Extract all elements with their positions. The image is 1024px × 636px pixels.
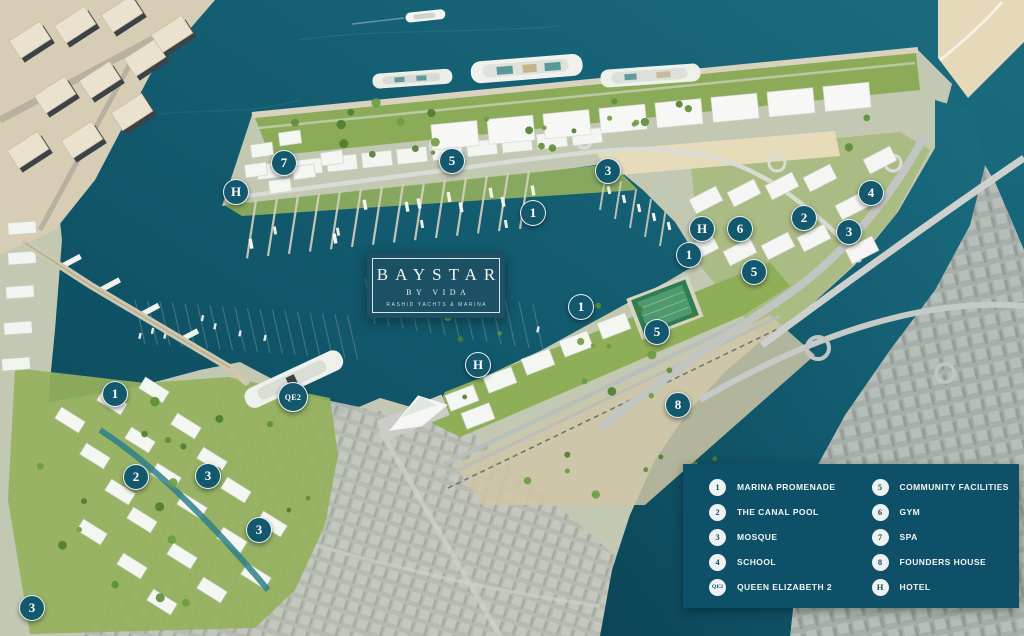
map-marker-8: 8 [665, 392, 691, 418]
map-marker-h: H [689, 216, 715, 242]
brand-title: BAYSTAR [370, 266, 502, 283]
legend-item-community-facilities: 5COMMUNITY FACILITIES [872, 477, 1009, 497]
map-marker-3: 3 [595, 158, 621, 184]
legend-item-school: 4SCHOOL [709, 552, 836, 572]
legend-badge: 1 [709, 479, 726, 496]
map-marker-1: 1 [568, 294, 594, 320]
legend-col-2: 5COMMUNITY FACILITIES6GYM7SPA8FOUNDERS H… [872, 477, 1009, 597]
map-marker-3: 3 [195, 463, 221, 489]
map-marker-2: 2 [791, 205, 817, 231]
legend-label: MARINA PROMENADE [737, 482, 836, 492]
map-marker-3: 3 [246, 517, 272, 543]
map-marker-3: 3 [19, 595, 45, 621]
legend-label: SPA [900, 532, 918, 542]
legend-label: HOTEL [900, 582, 931, 592]
legend-label: THE CANAL POOL [737, 507, 819, 517]
map-marker-7: 7 [271, 150, 297, 176]
map-marker-4: 4 [858, 180, 884, 206]
map-marker-6: 6 [727, 216, 753, 242]
legend-badge: 2 [709, 504, 726, 521]
map-marker-2: 2 [123, 464, 149, 490]
legend-label: MOSQUE [737, 532, 777, 542]
map-marker-qe2: QE2 [278, 382, 308, 412]
brand-subtitle: BY VIDA [402, 289, 471, 297]
legend-label: SCHOOL [737, 557, 776, 567]
legend-item-queen-elizabeth-2: QE2QUEEN ELIZABETH 2 [709, 577, 836, 597]
map-marker-5: 5 [439, 148, 465, 174]
legend-badge: 7 [872, 529, 889, 546]
map-marker-1: 1 [102, 381, 128, 407]
legend-badge: 5 [872, 479, 889, 496]
legend-item-mosque: 3MOSQUE [709, 527, 836, 547]
map-marker-3: 3 [836, 219, 862, 245]
legend-badge: 8 [872, 554, 889, 571]
map-marker-1: 1 [676, 242, 702, 268]
legend-item-the-canal-pool: 2THE CANAL POOL [709, 502, 836, 522]
legend-badge: QE2 [709, 579, 726, 596]
map-marker-5: 5 [644, 319, 670, 345]
legend-item-hotel: HHOTEL [872, 577, 1009, 597]
legend-badge: 6 [872, 504, 889, 521]
legend-badge: 4 [709, 554, 726, 571]
legend-badge: 3 [709, 529, 726, 546]
brand-tagline: RASHID YACHTS & MARINA [385, 303, 487, 308]
brand-card: BAYSTAR BY VIDA RASHID YACHTS & MARINA [367, 253, 505, 318]
legend-label: QUEEN ELIZABETH 2 [737, 582, 832, 592]
legend-badge: H [872, 579, 889, 596]
legend-label: COMMUNITY FACILITIES [900, 482, 1009, 492]
legend-panel: 1MARINA PROMENADE2THE CANAL POOL3MOSQUE4… [683, 464, 1019, 608]
map-marker-h: H [223, 179, 249, 205]
legend-item-marina-promenade: 1MARINA PROMENADE [709, 477, 836, 497]
legend-item-gym: 6GYM [872, 502, 1009, 522]
legend-item-founders-house: 8FOUNDERS HOUSE [872, 552, 1009, 572]
map-marker-1: 1 [520, 200, 546, 226]
map-marker-h: H [465, 352, 491, 378]
legend-label: FOUNDERS HOUSE [900, 557, 987, 567]
map-marker-5: 5 [741, 259, 767, 285]
legend-item-spa: 7SPA [872, 527, 1009, 547]
legend-col-1: 1MARINA PROMENADE2THE CANAL POOL3MOSQUE4… [709, 477, 836, 597]
masterplan-map: BAYSTAR BY VIDA RASHID YACHTS & MARINA 7… [0, 0, 1024, 636]
legend-label: GYM [900, 507, 921, 517]
